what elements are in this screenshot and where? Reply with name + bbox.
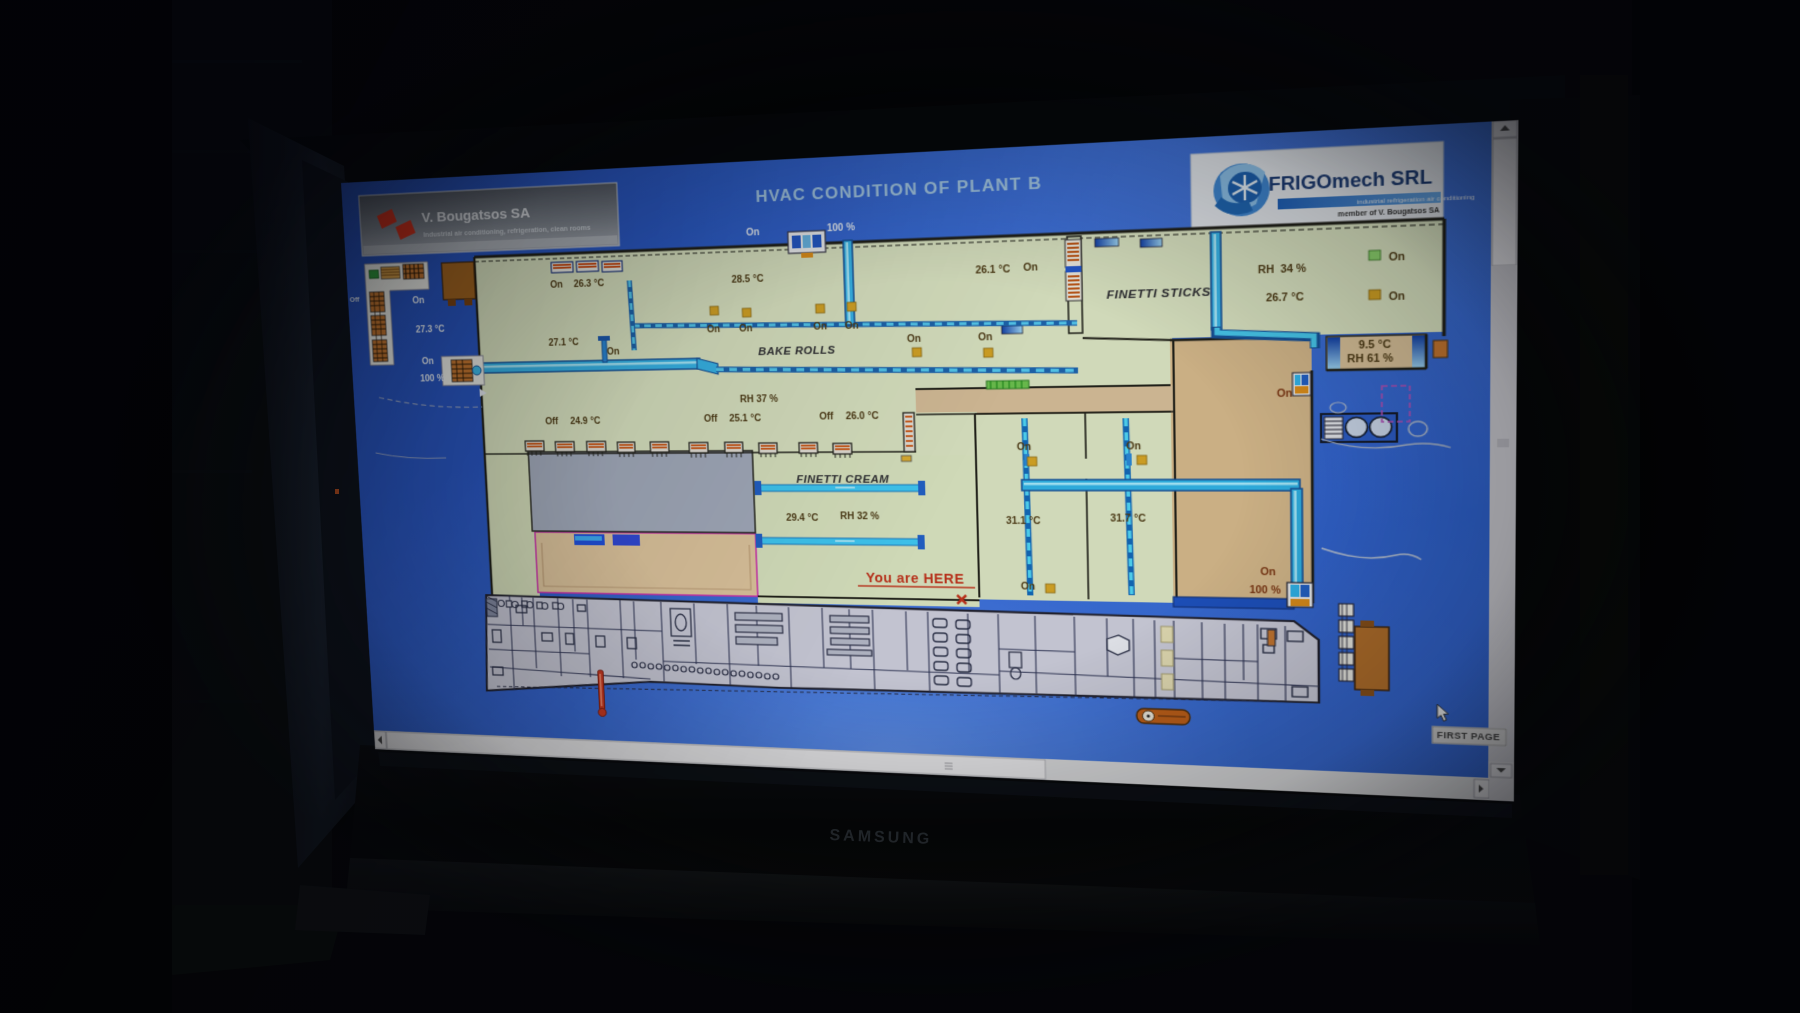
svg-text:FINETTI CREAM: FINETTI CREAM — [796, 474, 890, 486]
svg-text:27.3 °C: 27.3 °C — [416, 323, 445, 334]
svg-text:26.7 °C: 26.7 °C — [1266, 291, 1304, 304]
svg-text:Off: Off — [704, 413, 718, 424]
svg-text:25.1 °C: 25.1 °C — [729, 412, 761, 423]
svg-text:You are HERE: You are HERE — [866, 570, 965, 587]
svg-text:On: On — [978, 331, 993, 343]
svg-text:RH 32 %: RH 32 % — [840, 510, 880, 521]
svg-text:RH 61 %: RH 61 % — [1347, 352, 1394, 365]
svg-text:100 %: 100 % — [827, 221, 856, 234]
svg-text:24.9 °C: 24.9 °C — [570, 415, 601, 426]
svg-text:On: On — [1260, 566, 1275, 578]
svg-text:100 %: 100 % — [1249, 584, 1281, 596]
svg-text:Off: Off — [350, 296, 361, 304]
svg-text:On: On — [1126, 440, 1141, 452]
svg-text:On: On — [1389, 250, 1405, 263]
svg-text:On: On — [1277, 387, 1293, 399]
svg-text:On: On — [1023, 261, 1038, 273]
svg-text:On: On — [1389, 290, 1405, 303]
svg-text:On: On — [746, 226, 760, 238]
svg-text:Off: Off — [819, 410, 834, 421]
svg-text:On: On — [607, 346, 620, 357]
svg-text:On: On — [550, 279, 563, 290]
svg-text:28.5 °C: 28.5 °C — [731, 273, 763, 285]
svg-text:On: On — [1021, 580, 1036, 592]
svg-text:RH 37 %: RH 37 % — [740, 393, 779, 405]
svg-text:On: On — [422, 356, 434, 367]
svg-text:100 %: 100 % — [420, 373, 445, 384]
svg-text:On: On — [813, 320, 827, 332]
svg-text:On: On — [845, 319, 859, 331]
svg-text:26.3 °C: 26.3 °C — [573, 277, 604, 289]
svg-text:On: On — [739, 322, 753, 333]
svg-text:On: On — [1017, 441, 1032, 453]
svg-text:26.0 °C: 26.0 °C — [846, 410, 879, 422]
svg-text:29.4 °C: 29.4 °C — [786, 512, 818, 523]
svg-text:Off: Off — [545, 416, 558, 427]
svg-text:27.1 °C: 27.1 °C — [548, 336, 579, 348]
svg-text:On: On — [707, 323, 721, 334]
svg-text:RH 34 %: RH 34 % — [1258, 262, 1307, 276]
svg-text:9.5 °C: 9.5 °C — [1359, 338, 1391, 351]
svg-text:On: On — [412, 295, 424, 306]
svg-text:31.7 °C: 31.7 °C — [1110, 512, 1146, 524]
svg-text:31.1 °C: 31.1 °C — [1006, 515, 1041, 527]
svg-text:26.1 °C: 26.1 °C — [975, 263, 1010, 276]
svg-text:BAKE ROLLS: BAKE ROLLS — [758, 344, 836, 358]
svg-text:On: On — [907, 333, 921, 345]
